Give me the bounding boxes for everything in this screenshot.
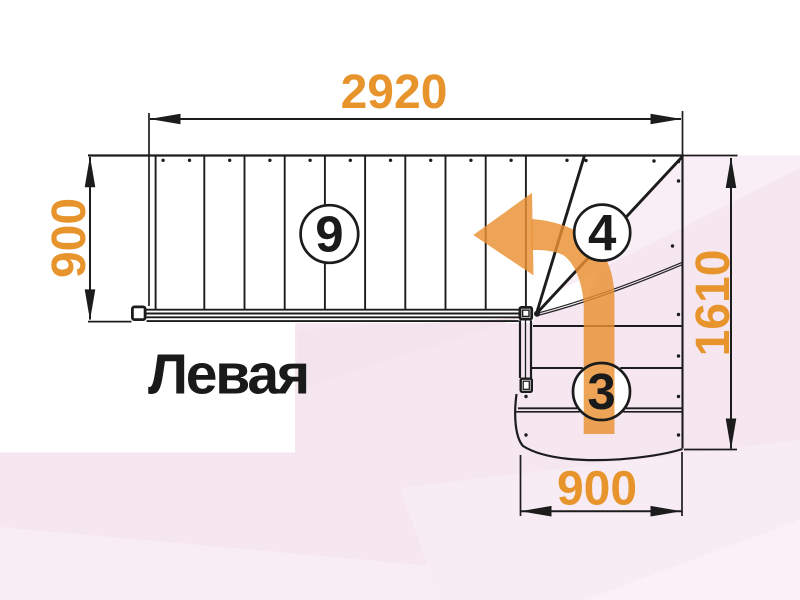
- svg-text:9: 9: [315, 206, 343, 263]
- svg-text:1610: 1610: [687, 250, 740, 357]
- svg-text:Левая: Левая: [148, 343, 308, 407]
- svg-text:4: 4: [588, 204, 617, 261]
- svg-text:3: 3: [587, 363, 615, 420]
- svg-text:900: 900: [557, 463, 637, 516]
- svg-text:900: 900: [43, 198, 96, 278]
- svg-text:2920: 2920: [341, 66, 448, 119]
